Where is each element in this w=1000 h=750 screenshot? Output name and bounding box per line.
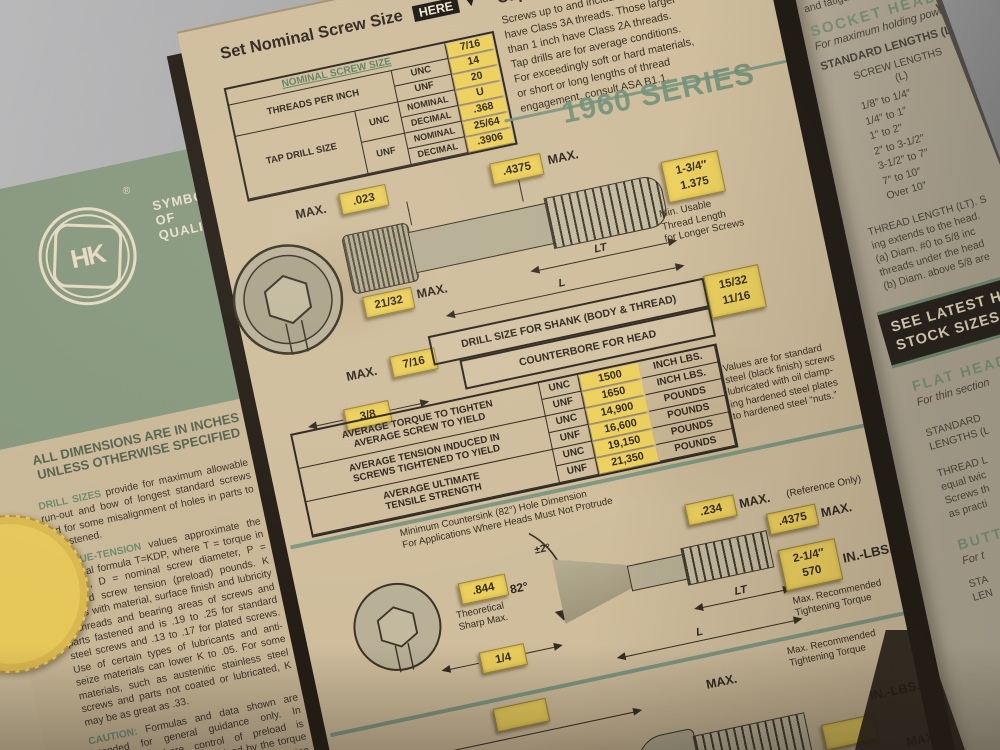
- paragraph-torque-tension: TORQUE-TENSION values approximate the em…: [50, 515, 296, 730]
- slide-chart-card: socket screws specify Holo-Krome when or…: [0, 0, 1000, 750]
- socket-end-view: [220, 232, 355, 367]
- flat-end-view: [343, 572, 452, 681]
- hk-logo-text: HK: [68, 238, 107, 275]
- photo-of-slide-chart: socket screws specify Holo-Krome when or…: [0, 0, 1000, 750]
- here-pointer-icon: ▼: [462, 0, 480, 11]
